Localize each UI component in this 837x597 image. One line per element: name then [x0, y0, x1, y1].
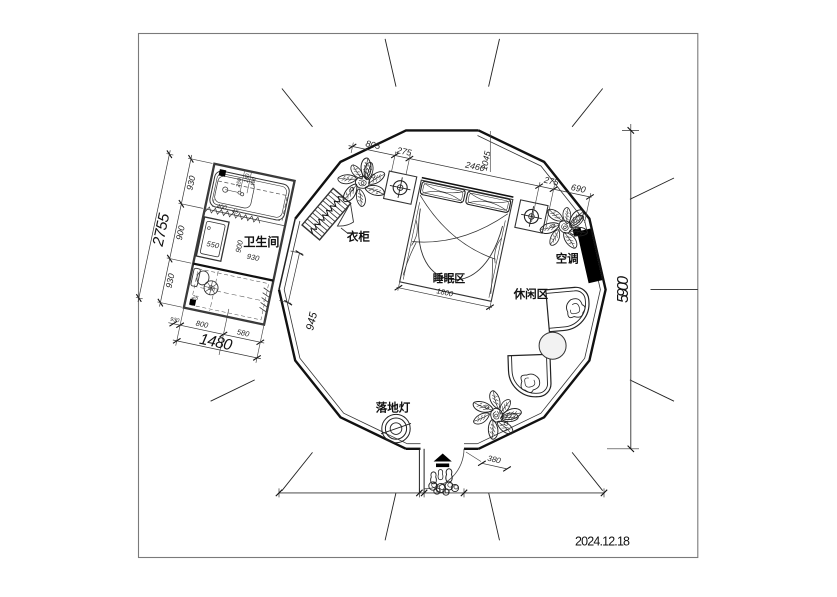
svg-text:衣柜: 衣柜 — [347, 230, 370, 244]
svg-text:5900: 5900 — [615, 276, 632, 303]
svg-text:空调: 空调 — [556, 251, 579, 265]
svg-text:睡眠区: 睡眠区 — [433, 271, 466, 285]
svg-text:2024.12.18: 2024.12.18 — [575, 535, 630, 549]
svg-text:落地灯: 落地灯 — [376, 401, 411, 415]
svg-text:休闲区: 休闲区 — [513, 287, 549, 301]
svg-text:卫生间: 卫生间 — [243, 234, 279, 249]
